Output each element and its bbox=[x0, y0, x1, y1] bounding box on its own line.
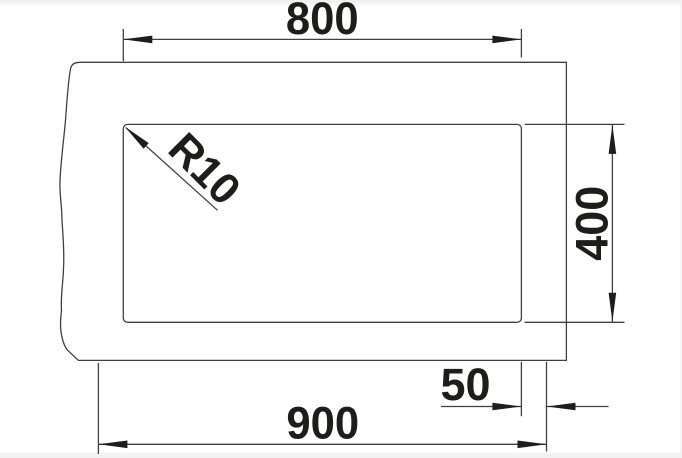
svg-text:800: 800 bbox=[286, 0, 359, 44]
svg-text:400: 400 bbox=[567, 186, 618, 261]
svg-text:50: 50 bbox=[440, 359, 490, 410]
svg-text:900: 900 bbox=[286, 399, 359, 449]
